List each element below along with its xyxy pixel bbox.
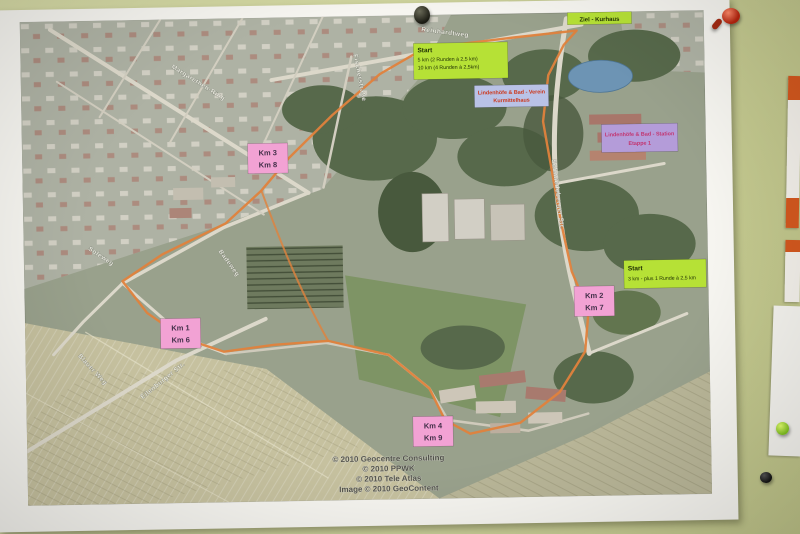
km-9: Km 9: [424, 433, 443, 442]
photo-of-pinned-map: Reinhardtweg Margarethen-Ring Fischerstr…: [0, 0, 800, 534]
km-marker-4-9: Km 4 Km 9: [413, 416, 454, 447]
finish-text: Ziel - Kurhaus: [579, 17, 620, 24]
allotment-gardens: [246, 245, 343, 309]
wall-poster-strip: [786, 76, 800, 228]
label-start-right: Start 3 km - plus 1 Runde à 2,5 km: [624, 259, 707, 289]
club-line1: Lindenhöfe & Bad - Verein: [478, 89, 545, 96]
pushpin-dark-icon: [414, 6, 430, 24]
label-club: Lindenhöfe & Bad - Verein Kurmittelhaus: [474, 84, 549, 107]
km-3: Km 3: [258, 148, 277, 157]
map-paper-sheet: Reinhardtweg Margarethen-Ring Fischerstr…: [0, 0, 738, 532]
start-right-line1: 3 km - plus 1 Runde à 2,5 km: [628, 275, 696, 282]
start-main-line1: 5 km (2 Runden à 2,5 km): [418, 56, 479, 63]
km-marker-3-8: Km 3 Km 8: [248, 143, 289, 174]
aerial-map-print: Reinhardtweg Margarethen-Ring Fischerstr…: [20, 10, 712, 506]
pushpin-green-icon: [776, 422, 789, 435]
wall-poster-strip-2: [784, 240, 800, 302]
copyright-line4: Image © 2010 GeoContent: [339, 483, 439, 494]
station-line2: Etappe 1: [628, 141, 651, 147]
label-start-main: Start 5 km (2 Runden à 2,5 km) 10 km (4 …: [413, 42, 508, 80]
km-4: Km 4: [424, 421, 443, 430]
label-finish: Ziel - Kurhaus: [567, 12, 631, 25]
km-marker-1-6: Km 1 Km 6: [160, 318, 201, 349]
km-marker-2-7: Km 2 Km 7: [574, 286, 615, 317]
km-7: Km 7: [585, 303, 604, 312]
pushpin-red-icon: [722, 8, 740, 24]
start-right-title: Start: [628, 265, 644, 272]
km-8: Km 8: [259, 160, 278, 169]
start-main-title: Start: [417, 47, 433, 54]
station-line1: Lindenhöfe & Bad - Station: [605, 131, 674, 138]
km-2: Km 2: [585, 291, 604, 300]
label-station: Lindenhöfe & Bad - Station Etappe 1: [601, 123, 678, 152]
club-line2: Kurmittelhaus: [493, 98, 529, 105]
start-main-line2: 10 km (4 Runden à 2,5km): [418, 64, 480, 71]
pushpin-black-icon: [760, 472, 772, 483]
aerial-map: Reinhardtweg Margarethen-Ring Fischerstr…: [20, 10, 712, 506]
km-6: Km 6: [171, 335, 190, 344]
km-1: Km 1: [171, 323, 190, 332]
copyright-line3: © 2010 Tele Atlas: [356, 474, 422, 484]
copyright-line2: © 2010 PPWK: [362, 464, 415, 474]
